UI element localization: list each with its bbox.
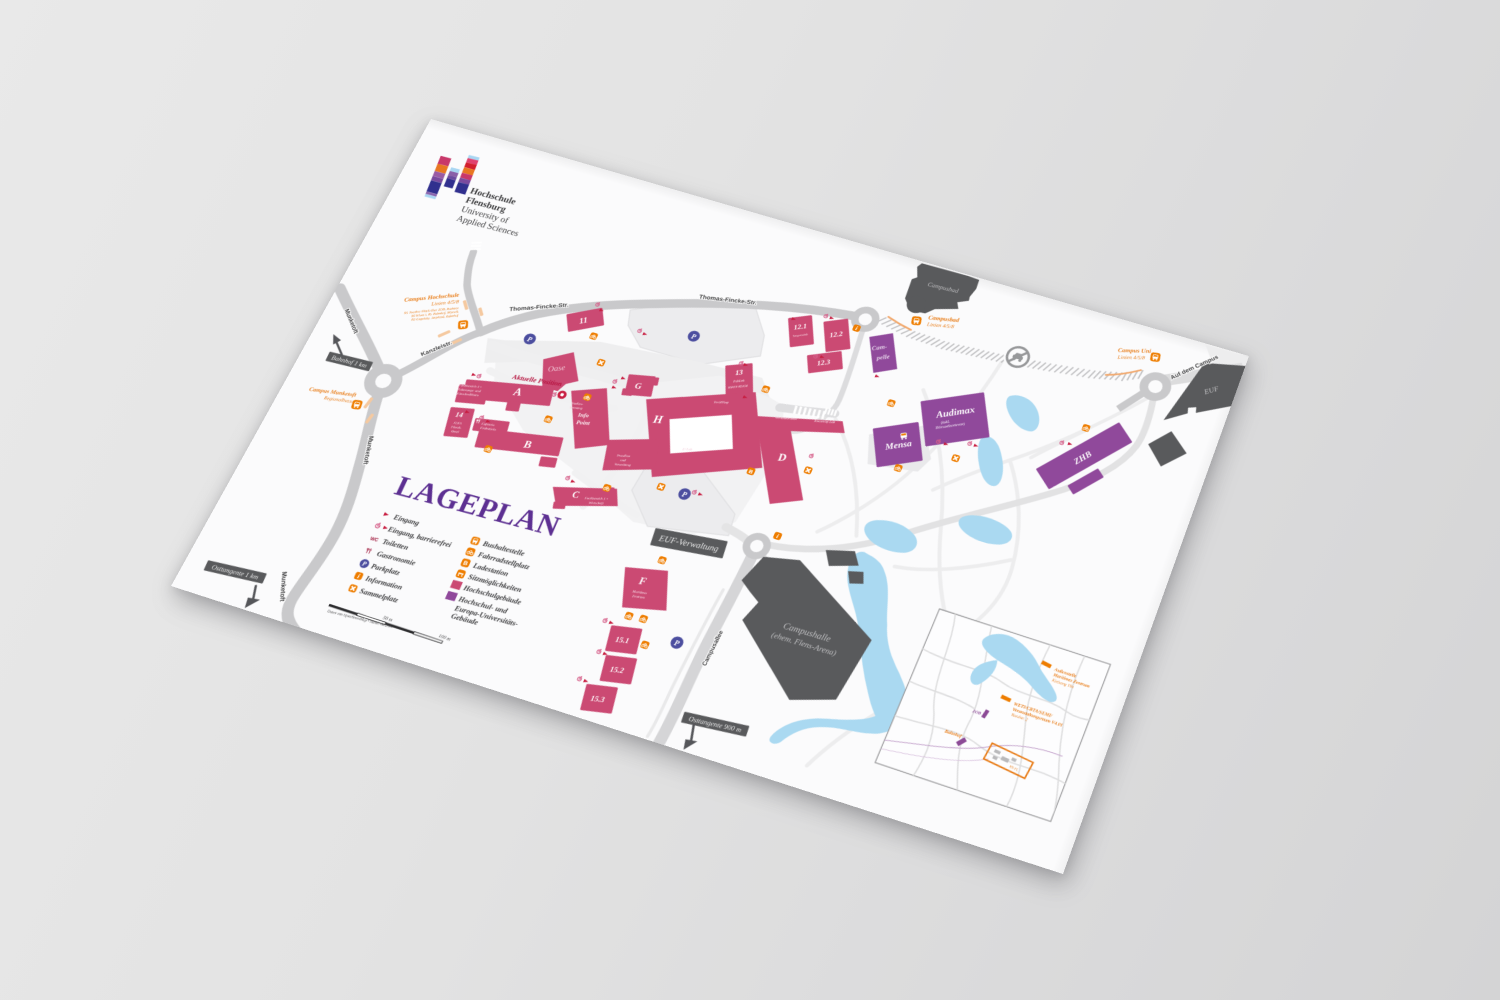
svg-text:Linien 4/5/8: Linien 4/5/8 — [1116, 356, 1145, 362]
svg-text:Wirtschaft: Wirtschaft — [588, 501, 604, 506]
svg-text:15.1: 15.1 — [614, 636, 630, 645]
svg-text:13: 13 — [735, 369, 743, 377]
svg-text:Info: Info — [576, 412, 590, 419]
svg-text:Verwaltung: Verwaltung — [614, 462, 632, 467]
svg-text:TextilShop: TextilShop — [713, 400, 729, 404]
svg-text:Point: Point — [575, 420, 590, 427]
svg-text:11: 11 — [579, 315, 588, 325]
svg-text:Hotel: Hotel — [449, 429, 459, 434]
svg-text:15.3: 15.3 — [589, 695, 606, 705]
svg-text:15.2: 15.2 — [609, 666, 625, 676]
svg-text:Campus Uni: Campus Uni — [1118, 348, 1152, 355]
svg-text:E³ Lab: E³ Lab — [681, 447, 693, 451]
